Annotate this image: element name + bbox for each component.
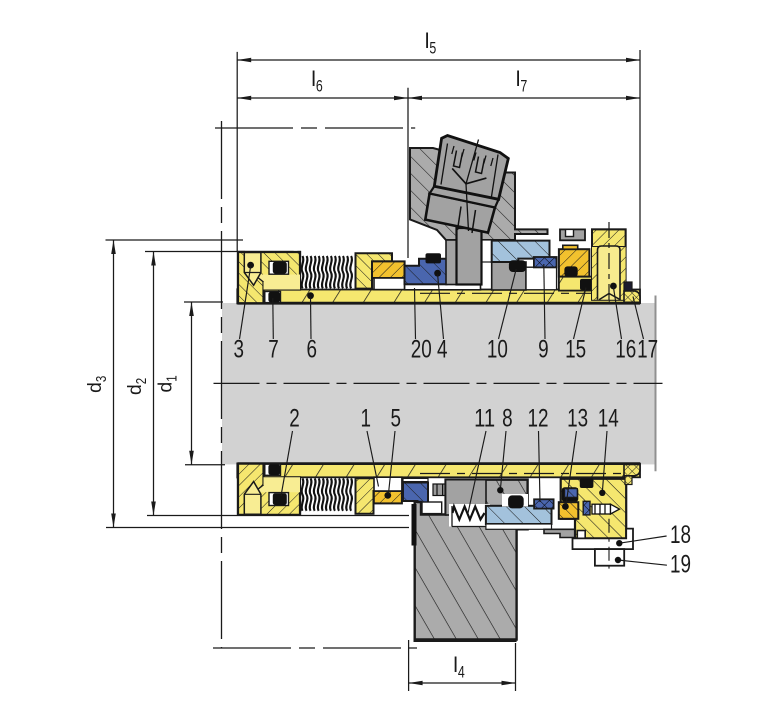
svg-text:9: 9	[538, 336, 549, 364]
svg-text:20: 20	[411, 336, 432, 364]
svg-text:8: 8	[502, 405, 513, 433]
svg-text:l7: l7	[516, 68, 528, 96]
svg-text:5: 5	[391, 405, 402, 433]
svg-text:11: 11	[474, 405, 495, 433]
svg-text:19: 19	[670, 550, 691, 578]
svg-text:17: 17	[637, 336, 658, 364]
svg-text:4: 4	[437, 336, 448, 364]
svg-text:d2: d2	[124, 378, 150, 395]
svg-text:13: 13	[567, 405, 588, 433]
svg-text:l6: l6	[311, 68, 323, 96]
svg-text:10: 10	[487, 336, 508, 364]
svg-text:16: 16	[615, 336, 636, 364]
svg-text:2: 2	[289, 405, 300, 433]
svg-text:d1: d1	[155, 375, 181, 392]
svg-text:15: 15	[565, 336, 586, 364]
svg-text:7: 7	[268, 336, 279, 364]
svg-text:l5: l5	[425, 30, 437, 58]
svg-text:1: 1	[360, 405, 371, 433]
svg-text:12: 12	[528, 405, 549, 433]
svg-text:3: 3	[233, 336, 244, 364]
svg-text:18: 18	[670, 521, 691, 549]
svg-text:d3: d3	[84, 376, 110, 393]
svg-text:l4: l4	[453, 654, 465, 682]
svg-text:6: 6	[307, 336, 318, 364]
svg-text:14: 14	[598, 405, 619, 433]
